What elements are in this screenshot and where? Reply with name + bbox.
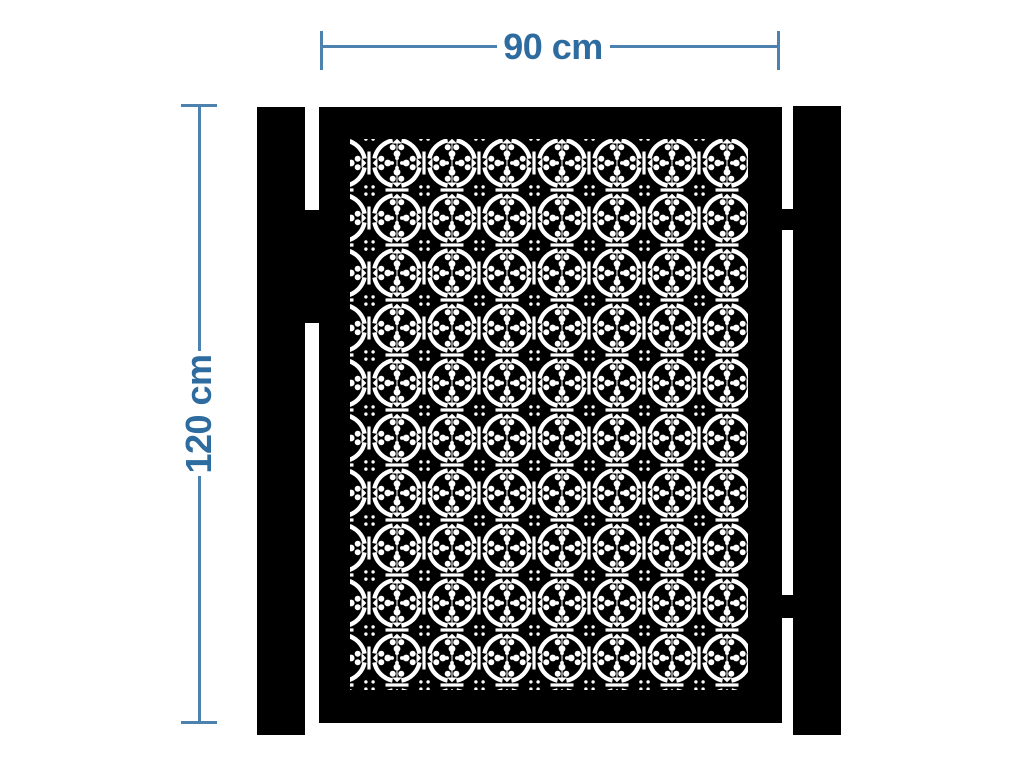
right-upper-bracket [781, 209, 794, 230]
width-dim-tick-left [320, 31, 323, 70]
right-lower-bracket [781, 595, 794, 618]
gate-graphic [0, 0, 1024, 768]
height-dim-tick-bottom [181, 721, 217, 724]
width-dim-line-right [610, 45, 779, 48]
height-dim-label: 120 cm [181, 354, 217, 473]
height-dim-line-upper [198, 105, 201, 351]
left-hinge-plate [304, 210, 320, 323]
left-post [257, 107, 305, 735]
gate-dimension-diagram: 90 cm 120 cm [0, 0, 1024, 768]
gate-ornament-panel [350, 139, 748, 690]
height-dim-line-lower [198, 476, 201, 723]
width-dim-tick-right [777, 31, 780, 70]
width-dim-line-left [321, 45, 497, 48]
right-post [793, 106, 841, 735]
width-dim-label: 90 cm [503, 29, 603, 65]
